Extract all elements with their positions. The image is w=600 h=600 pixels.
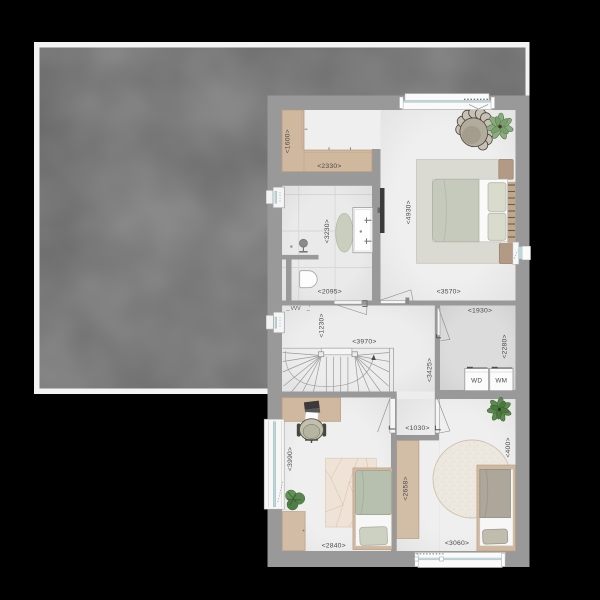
svg-text:<3570>: <3570> [437,288,461,295]
svg-text:<1230>: <1230> [319,313,326,337]
svg-text:<3990>: <3990> [287,447,294,471]
svg-text:<3060>: <3060> [445,540,469,547]
svg-text:WM: WM [495,378,507,385]
svg-text:<2330>: <2330> [317,163,341,170]
svg-text:<1030>: <1030> [405,425,429,432]
svg-text:<2095>: <2095> [318,289,342,296]
svg-text:<400>: <400> [505,437,512,457]
svg-text:<2840>: <2840> [322,543,346,550]
svg-text:<1930>: <1930> [468,308,492,315]
svg-text:<3230>: <3230> [324,219,331,243]
svg-text:<1600>: <1600> [285,129,292,153]
svg-text:WD: WD [471,378,482,385]
svg-text:<2280>: <2280> [502,334,509,358]
svg-text:<3425>: <3425> [427,358,434,382]
svg-text:<3970>: <3970> [352,338,376,345]
svg-text:<2658>: <2658> [403,476,410,500]
svg-text:<4930>: <4930> [406,200,413,224]
svg-text:VVV: VVV [291,306,302,312]
